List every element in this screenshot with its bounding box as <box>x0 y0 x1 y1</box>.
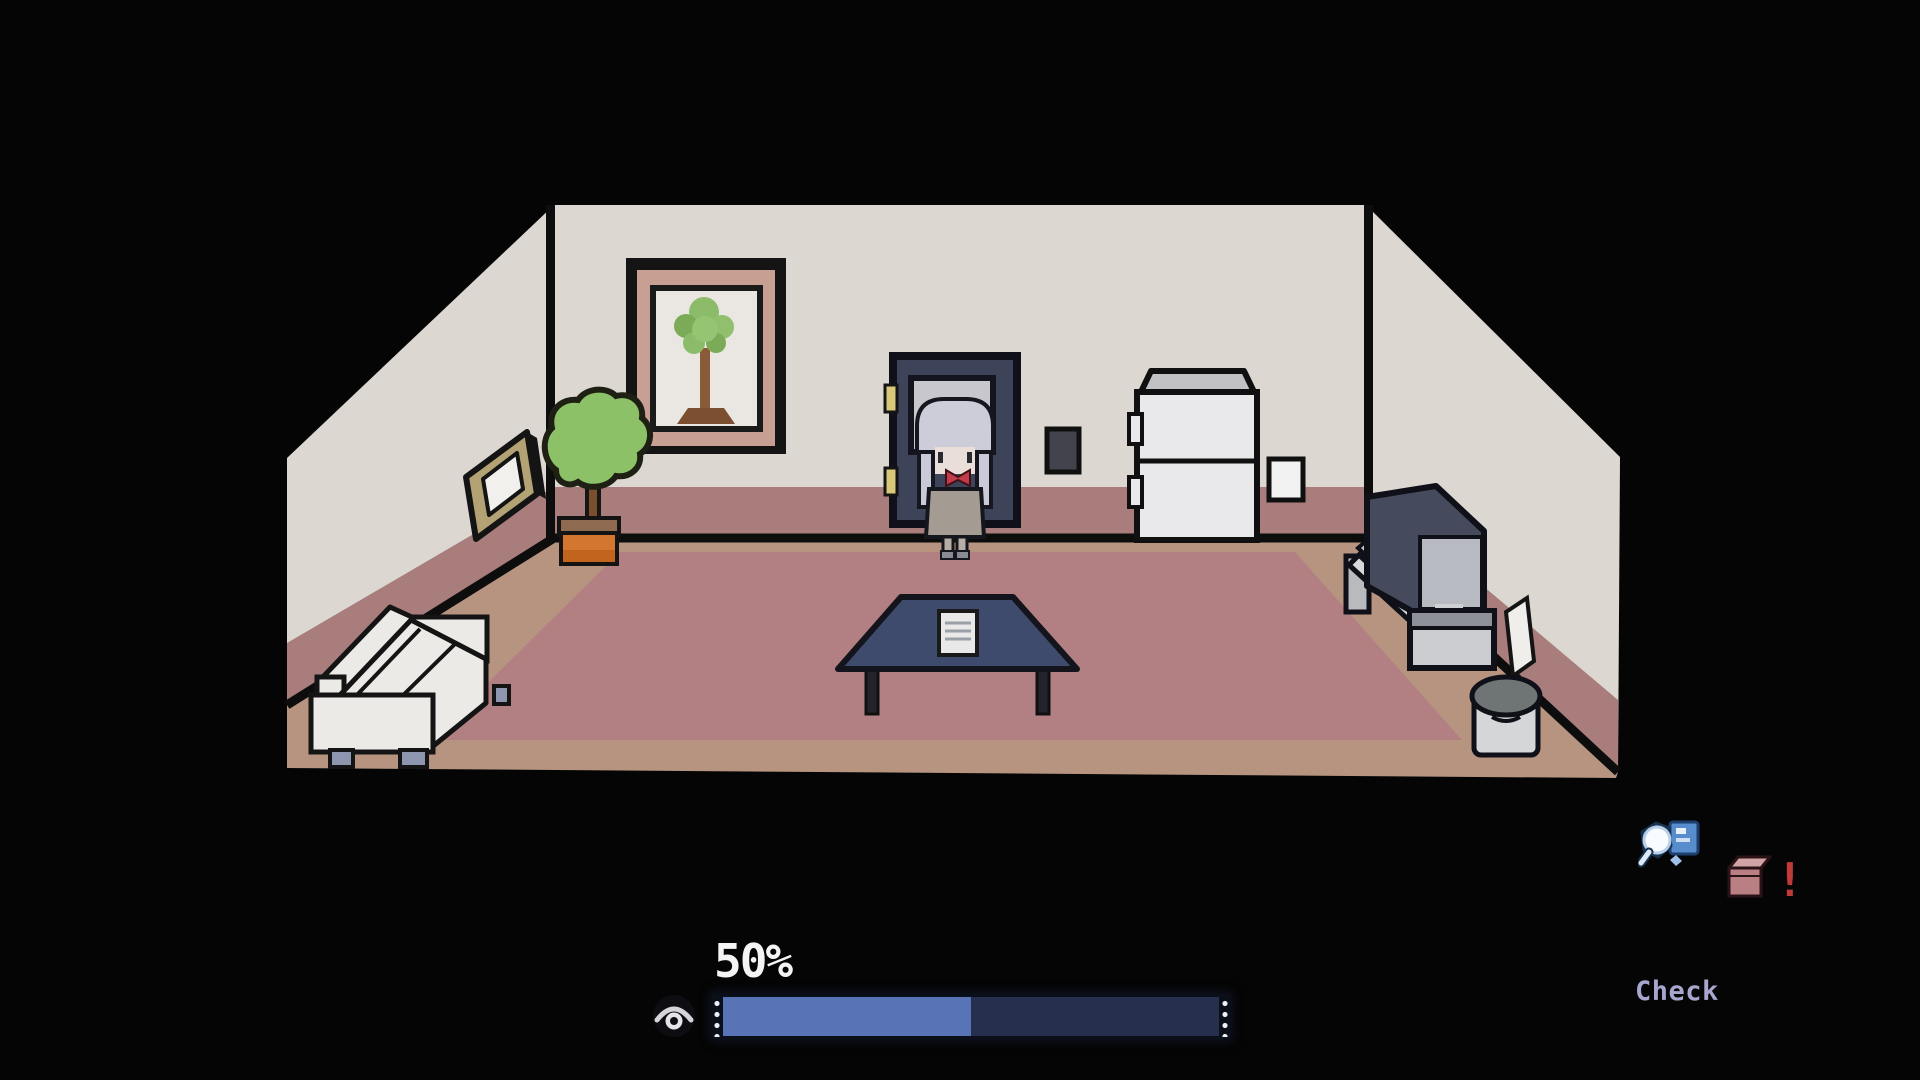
wall-panel <box>1269 459 1303 500</box>
item-alert-mark: ! <box>1776 854 1804 906</box>
game-viewport[interactable]: 50% Check ! <box>0 0 1920 1080</box>
tv-stand <box>1410 611 1494 668</box>
check-action-label[interactable]: Check <box>1635 976 1719 1007</box>
character <box>917 399 993 559</box>
progress-bar-left-dots <box>713 996 721 1037</box>
light-switch <box>1047 429 1079 472</box>
table-paper <box>939 611 977 655</box>
wall-paper <box>1506 598 1534 676</box>
refrigerator <box>1129 371 1257 540</box>
item-notification[interactable]: ! <box>1725 854 1804 906</box>
trash-can <box>1472 677 1540 755</box>
progress-percent-label: 50% <box>714 934 791 988</box>
room-scene <box>0 0 1920 1080</box>
item-box-icon <box>1725 854 1773 906</box>
progress-bar-track <box>723 997 1219 1036</box>
progress-bar-right-dots <box>1221 996 1229 1037</box>
progress-bar-fill <box>723 997 971 1036</box>
magnifier-icon[interactable] <box>1638 816 1704 878</box>
progress-bar <box>712 994 1230 1039</box>
eye-icon[interactable] <box>650 992 698 1040</box>
